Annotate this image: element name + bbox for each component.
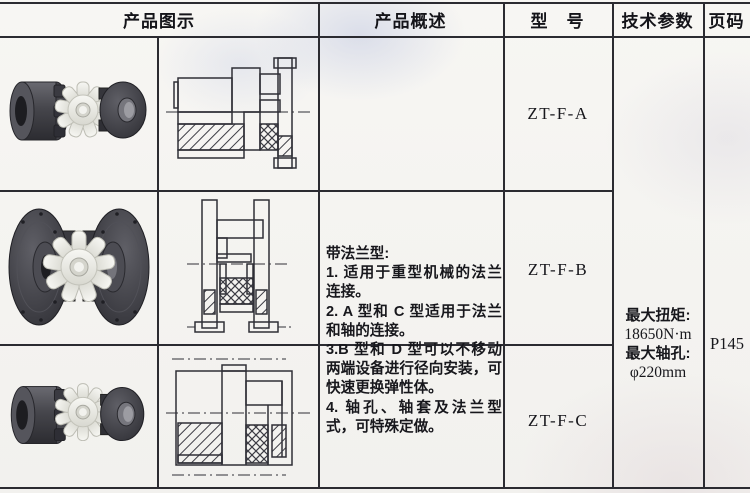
tech-params-block: 最大扭矩: 18650N·m 最大轴孔: φ220mm (613, 306, 703, 382)
overview-item: 2. A 型和 C 型适用于法兰和轴的连接。 (326, 303, 502, 341)
coupling-photo-row1 (0, 38, 157, 188)
coupling-photo-row3 (0, 346, 157, 487)
overview-item: 4. 轴孔、轴套及法兰型式，可特殊定做。 (326, 399, 502, 437)
flange-disc-right (100, 387, 143, 440)
section-drawing-row1 (159, 38, 318, 188)
overview-item: 1. 适用于重型机械的法兰连接。 (326, 264, 502, 302)
catalog-page: 产品图示 产品概述 型 号 技术参数 页码 (0, 0, 750, 493)
col-divider-4 (703, 2, 705, 487)
col-divider-1 (318, 2, 320, 487)
flange-pair-section-drawing (183, 194, 295, 340)
header-page: 页码 (703, 2, 750, 36)
max-torque-label: 最大扭矩: (613, 306, 703, 325)
col-divider-3 (612, 2, 614, 487)
product-overview-text: 带法兰型: 1. 适用于重型机械的法兰连接。 2. A 型和 C 型适用于法兰和… (326, 245, 502, 437)
model-zt-f-a: ZT-F-A (504, 104, 612, 124)
model-zt-f-b: ZT-F-B (504, 260, 612, 280)
jaw-coupling-photo (9, 363, 149, 471)
max-torque-value: 18650N·m (613, 325, 703, 344)
page-code: P145 (704, 334, 750, 354)
header-product-image: 产品图示 (0, 2, 318, 36)
overview-item: 3.B 型和 D 型可以不移动两端设备进行径向安装，可快速更换弹性体。 (326, 341, 502, 399)
jaw-coupling-photo (9, 58, 149, 168)
max-bore-value: φ220mm (613, 363, 703, 382)
table-bottom-border (0, 487, 750, 489)
coupling-photo-row2 (0, 192, 157, 342)
model-zt-f-c: ZT-F-C (504, 411, 612, 431)
header-product-overview: 产品概述 (318, 2, 503, 36)
sleeve-hub-section-drawing (164, 351, 314, 483)
flange-coupling-photo (3, 197, 155, 337)
section-drawing-row3 (159, 346, 318, 487)
header-tech-params: 技术参数 (612, 2, 703, 36)
header-model: 型 号 (503, 2, 612, 36)
overview-title: 带法兰型: (326, 245, 502, 264)
max-bore-label: 最大轴孔: (613, 344, 703, 363)
section-drawing-row2 (159, 192, 318, 342)
flange-disc-right (99, 82, 146, 138)
flange-hub-section-drawing (164, 46, 314, 181)
